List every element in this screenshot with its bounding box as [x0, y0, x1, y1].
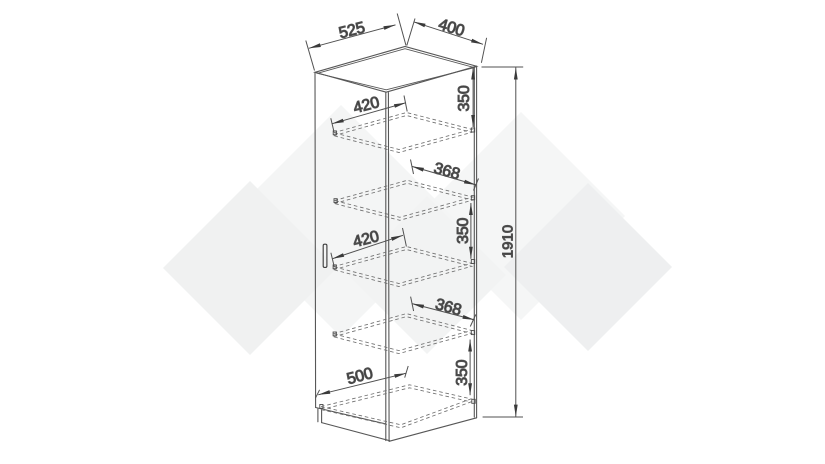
svg-text:1910: 1910	[500, 225, 517, 258]
svg-text:350: 350	[456, 85, 473, 111]
svg-text:350: 350	[455, 217, 472, 243]
svg-text:350: 350	[454, 359, 471, 385]
